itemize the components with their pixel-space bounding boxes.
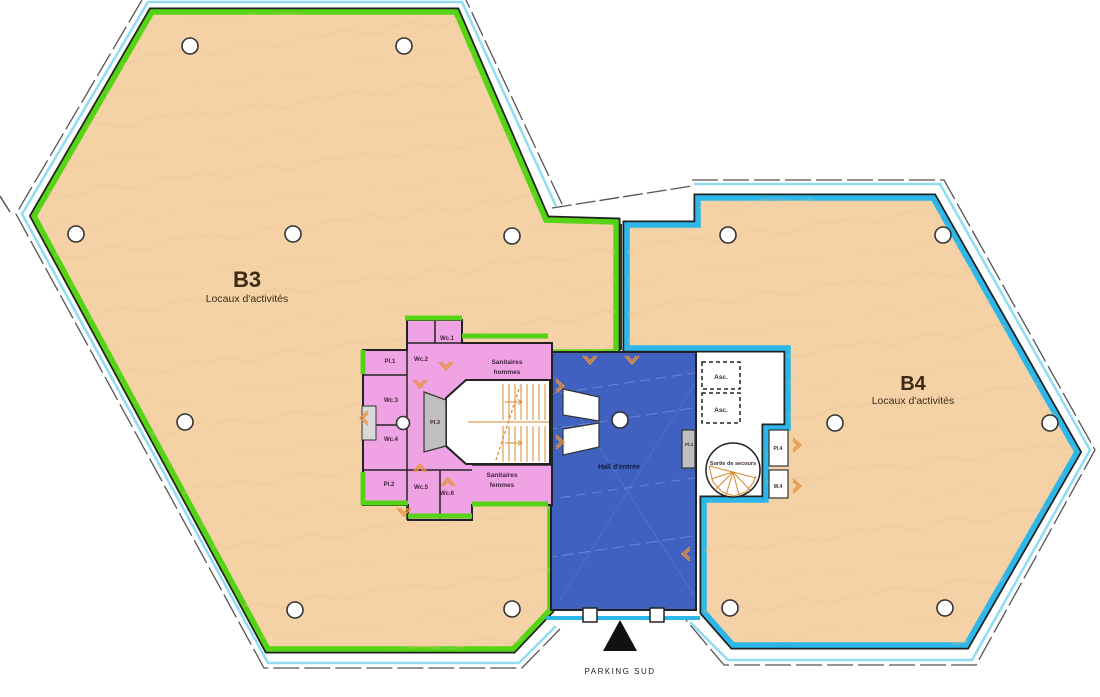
column-marker: [504, 601, 520, 617]
south-entrance: [546, 608, 700, 651]
label-sanitaires-femmes-2: femmes: [490, 482, 515, 489]
room-label-wc1: Wc.1: [440, 336, 455, 342]
column-marker: [935, 227, 951, 243]
column-marker: [68, 226, 84, 242]
room-label-pl4: Pl.4: [774, 446, 783, 452]
floor-plan: B3 Locaux d'activités B4 Locaux d'activi…: [0, 0, 1100, 697]
column-marker: [720, 227, 736, 243]
room-label-wc3: Wc.3: [384, 398, 399, 404]
column-marker: [827, 415, 843, 431]
door-jamb: [583, 608, 597, 622]
label-parking-sud: PARKING SUD: [584, 667, 655, 676]
building-b3-type: Locaux d'activités: [206, 293, 289, 305]
column-marker: [612, 412, 628, 428]
column-marker: [937, 600, 953, 616]
label-elevator-1: Asc.: [714, 374, 728, 381]
column-marker: [504, 228, 520, 244]
building-b4-code: B4: [900, 373, 926, 395]
building-b4-type: Locaux d'activités: [872, 395, 955, 407]
label-sortie-secours: Sortie de secours: [710, 461, 756, 467]
closet-panel: [682, 430, 695, 468]
column-marker: [287, 602, 303, 618]
column-marker: [285, 226, 301, 242]
column-marker: [396, 38, 412, 54]
room-label-wc4: Wc.4: [384, 437, 399, 443]
room-label-wc2: Wc.2: [414, 357, 429, 363]
door-jamb: [650, 608, 664, 622]
room-label-wc6: Wc.6: [440, 491, 455, 497]
door-recess: [362, 406, 376, 440]
label-hall-entree: Hall d'entrée: [598, 464, 640, 471]
room-label-pl3-west: Pl.3: [430, 420, 440, 426]
room-label-pl3-east: Pl.3: [685, 442, 694, 447]
label-elevator-2: Asc.: [714, 407, 728, 414]
building-b3-code: B3: [233, 267, 261, 292]
column-marker: [1042, 415, 1058, 431]
label-sanitaires-hommes-2: hommes: [494, 369, 521, 376]
room-label-pl2: Pl.2: [384, 482, 395, 488]
room-label-wc5: Wc.5: [414, 485, 429, 491]
room-label-pl1: Pl.1: [385, 359, 396, 365]
b4-lobby: [682, 362, 788, 498]
column-marker: [722, 600, 738, 616]
column-marker: [397, 417, 410, 430]
parking-arrow-icon: [603, 620, 637, 651]
column-marker: [177, 414, 193, 430]
spiral-stair: [706, 443, 760, 497]
room-label-w4: W.4: [774, 484, 783, 490]
label-sanitaires-femmes-1: Sanitaires: [486, 472, 517, 479]
column-marker: [182, 38, 198, 54]
label-sanitaires-hommes-1: Sanitaires: [491, 359, 522, 366]
building-b3-area: [34, 12, 616, 649]
